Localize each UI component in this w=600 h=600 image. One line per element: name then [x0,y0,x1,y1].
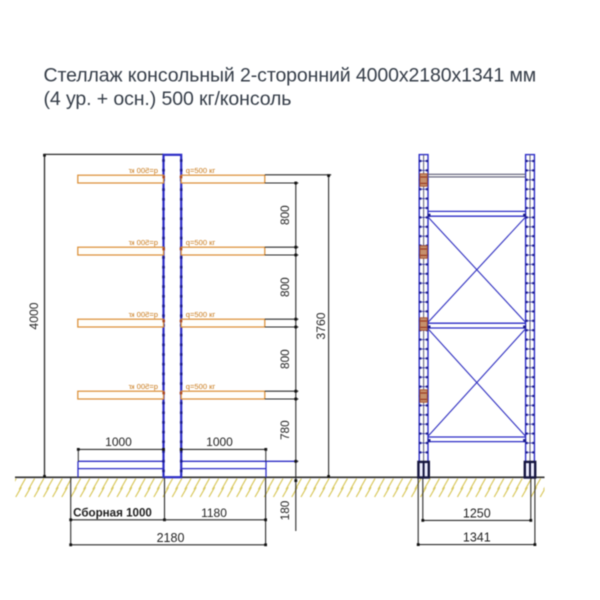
svg-text:2180: 2180 [157,531,185,545]
svg-text:1341: 1341 [463,531,491,545]
svg-text:Сборная 1000: Сборная 1000 [73,507,152,520]
svg-text:4000: 4000 [27,302,41,329]
svg-text:q=500 кг: q=500 кг [128,238,158,247]
svg-text:780: 780 [278,420,292,440]
svg-text:1000: 1000 [105,435,132,449]
svg-text:q=500 кг: q=500 кг [186,310,216,319]
svg-text:1250: 1250 [463,506,491,520]
svg-text:800: 800 [278,349,292,369]
svg-text:(4 ур. + осн.) 500 кг/консоль: (4 ур. + осн.) 500 кг/консоль [44,88,292,110]
svg-text:q=500 кг: q=500 кг [186,166,216,175]
svg-text:1000: 1000 [206,435,233,449]
svg-text:q=500 кг: q=500 кг [128,166,158,175]
svg-text:q=500 кг: q=500 кг [128,310,158,319]
svg-text:800: 800 [278,205,292,225]
svg-text:Стеллаж консольный 2-сторонний: Стеллаж консольный 2-сторонний 4000х2180… [44,64,537,86]
svg-text:3760: 3760 [314,312,328,339]
svg-text:q=500 кг: q=500 кг [128,382,158,391]
svg-text:180: 180 [278,500,292,520]
svg-text:800: 800 [278,277,292,297]
svg-text:1180: 1180 [201,506,227,520]
svg-text:q=500 кг: q=500 кг [186,382,216,391]
svg-text:q=500 кг: q=500 кг [186,238,216,247]
